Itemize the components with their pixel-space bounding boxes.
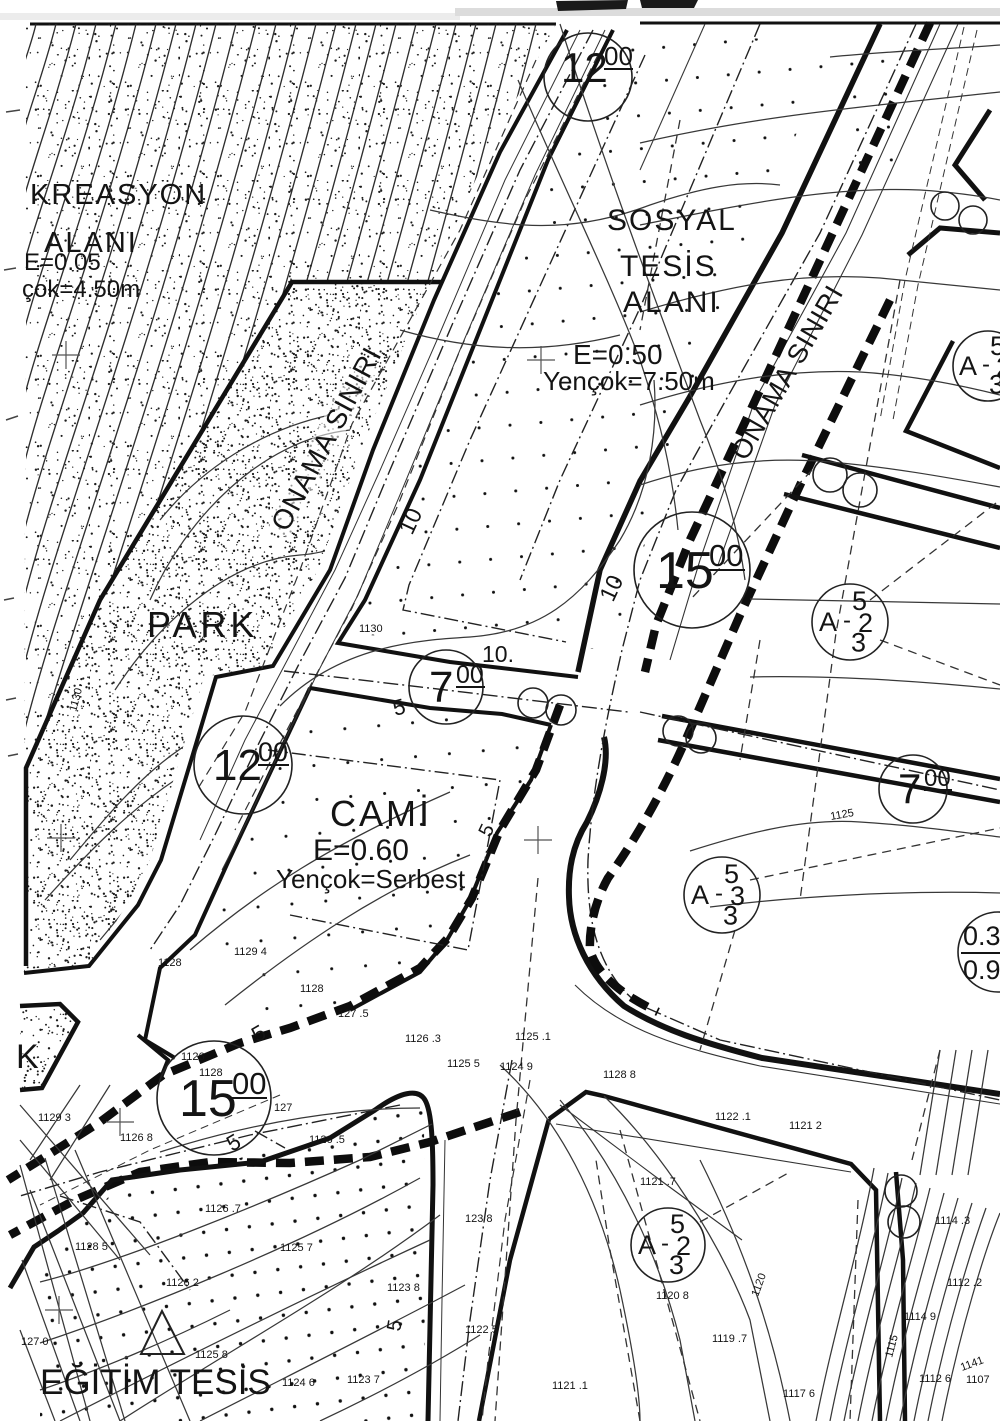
svg-text:1114 .3: 1114 .3 bbox=[935, 1215, 970, 1227]
svg-text:Yençok=Serbest: Yençok=Serbest bbox=[276, 864, 466, 894]
svg-text:E=0.60: E=0.60 bbox=[313, 834, 409, 867]
svg-text:1121 2: 1121 2 bbox=[789, 1120, 822, 1132]
svg-text:1121 .1: 1121 .1 bbox=[552, 1380, 588, 1392]
svg-text:A: A bbox=[638, 1230, 656, 1260]
svg-text:1117 6: 1117 6 bbox=[783, 1388, 815, 1400]
svg-text:EĞİTİM TESİS: EĞİTİM TESİS bbox=[40, 1363, 271, 1402]
svg-text:3: 3 bbox=[851, 628, 866, 658]
svg-text:PARK: PARK bbox=[147, 604, 258, 645]
svg-text:1124 9: 1124 9 bbox=[500, 1061, 533, 1073]
svg-text:çok=4.50m: çok=4.50m bbox=[22, 276, 140, 303]
svg-text:1128: 1128 bbox=[158, 957, 182, 969]
svg-text:123 8: 123 8 bbox=[465, 1213, 493, 1225]
svg-text:A: A bbox=[819, 607, 837, 637]
svg-text:1126: 1126 bbox=[181, 1051, 205, 1063]
svg-text:3: 3 bbox=[669, 1250, 684, 1280]
svg-text:00: 00 bbox=[456, 661, 484, 689]
svg-text:A: A bbox=[691, 880, 709, 910]
svg-text:1125 7: 1125 7 bbox=[280, 1242, 313, 1254]
svg-text:1112 .2: 1112 .2 bbox=[947, 1277, 982, 1289]
svg-text:1123 7: 1123 7 bbox=[347, 1374, 380, 1386]
svg-text:E=0.05: E=0.05 bbox=[24, 249, 101, 276]
svg-text:1128 5: 1128 5 bbox=[75, 1241, 108, 1253]
svg-text:1130: 1130 bbox=[359, 623, 383, 635]
svg-text:1126 .7: 1126 .7 bbox=[205, 1203, 241, 1215]
svg-text:1107: 1107 bbox=[966, 1374, 990, 1386]
svg-text:0.3: 0.3 bbox=[963, 921, 1000, 951]
svg-text:0.9: 0.9 bbox=[963, 955, 1000, 985]
svg-text:12: 12 bbox=[561, 44, 608, 91]
svg-text:127 .5: 127 .5 bbox=[338, 1008, 369, 1020]
svg-text:12: 12 bbox=[213, 741, 262, 790]
svg-text:00: 00 bbox=[709, 538, 743, 573]
svg-text:1126 .5: 1126 .5 bbox=[309, 1134, 345, 1146]
svg-text:1129 4: 1129 4 bbox=[234, 946, 267, 958]
svg-text:Yençok=7.50m: Yençok=7.50m bbox=[543, 366, 715, 396]
svg-text:1121 .7: 1121 .7 bbox=[640, 1176, 676, 1188]
svg-text:-: - bbox=[843, 607, 851, 634]
svg-text:-: - bbox=[661, 1230, 669, 1257]
svg-text:7: 7 bbox=[429, 663, 453, 712]
svg-text:1120 8: 1120 8 bbox=[656, 1290, 689, 1302]
svg-text:1125 8: 1125 8 bbox=[195, 1349, 228, 1361]
svg-text:1129 3: 1129 3 bbox=[38, 1112, 71, 1124]
svg-text:1128 8: 1128 8 bbox=[603, 1069, 636, 1081]
svg-text:1126 2: 1126 2 bbox=[166, 1277, 199, 1289]
svg-text:127 0: 127 0 bbox=[21, 1336, 49, 1348]
svg-text:1128: 1128 bbox=[300, 983, 324, 995]
svg-text:1128: 1128 bbox=[199, 1067, 223, 1079]
svg-text:00: 00 bbox=[232, 1066, 266, 1101]
svg-text:TESİS: TESİS bbox=[620, 250, 717, 283]
svg-text:K: K bbox=[16, 1038, 39, 1076]
svg-text:1114 9: 1114 9 bbox=[904, 1311, 936, 1323]
svg-text:-: - bbox=[715, 880, 723, 907]
svg-text:SOSYAL: SOSYAL bbox=[607, 204, 737, 237]
svg-text:00: 00 bbox=[604, 41, 633, 71]
svg-text:1126 .3: 1126 .3 bbox=[405, 1033, 441, 1045]
svg-text:00: 00 bbox=[924, 765, 951, 792]
svg-text:7: 7 bbox=[898, 765, 921, 812]
svg-text:00: 00 bbox=[258, 737, 288, 767]
svg-text:CAMİ: CAMİ bbox=[330, 793, 432, 834]
svg-text:3: 3 bbox=[723, 901, 738, 931]
svg-text:1122 .1: 1122 .1 bbox=[715, 1111, 751, 1123]
svg-text:1125 5: 1125 5 bbox=[447, 1058, 480, 1070]
svg-text:1112 6: 1112 6 bbox=[919, 1373, 951, 1385]
svg-text:1125 .1: 1125 .1 bbox=[515, 1031, 551, 1043]
svg-text:3: 3 bbox=[989, 369, 1000, 399]
svg-text:1126 8: 1126 8 bbox=[120, 1132, 153, 1144]
svg-text:127: 127 bbox=[274, 1102, 292, 1114]
svg-text:KREASYON: KREASYON bbox=[30, 179, 207, 211]
svg-text:A: A bbox=[959, 351, 977, 381]
svg-text:1124 6: 1124 6 bbox=[282, 1377, 315, 1389]
svg-text:ALANI: ALANI bbox=[623, 286, 720, 319]
svg-text:1123 8: 1123 8 bbox=[387, 1282, 420, 1294]
svg-text:1119 .7: 1119 .7 bbox=[712, 1333, 747, 1345]
svg-text:15: 15 bbox=[656, 542, 714, 600]
svg-text:1122 5: 1122 5 bbox=[465, 1324, 498, 1336]
svg-text:10.: 10. bbox=[482, 641, 514, 667]
